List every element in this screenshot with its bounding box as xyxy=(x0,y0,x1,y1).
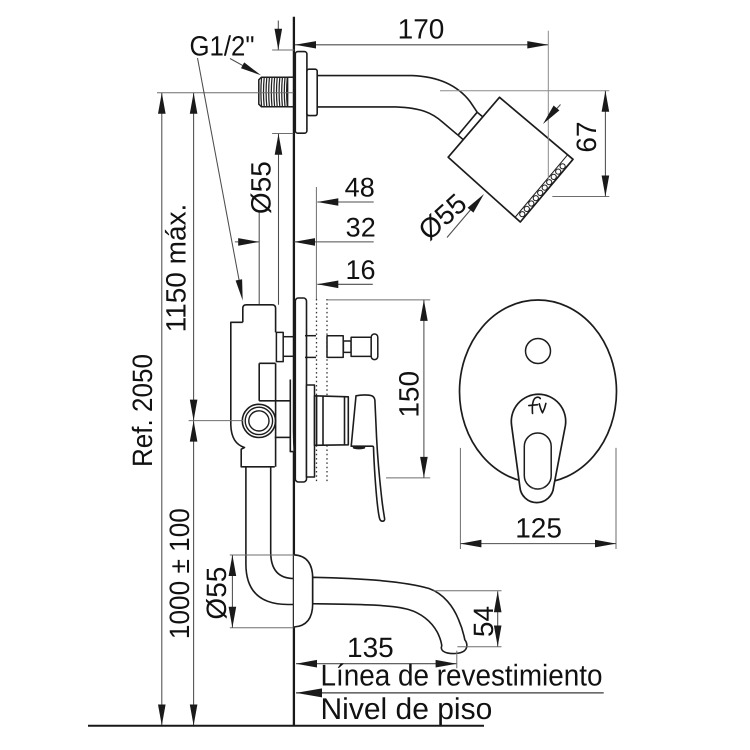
svg-text:125: 125 xyxy=(515,513,562,544)
svg-text:67: 67 xyxy=(571,121,602,152)
svg-text:1000 ± 100: 1000 ± 100 xyxy=(164,508,195,639)
svg-text:Ref. 2050: Ref. 2050 xyxy=(127,354,158,467)
svg-text:Ø55: Ø55 xyxy=(245,161,276,214)
svg-text:Nivel de piso: Nivel de piso xyxy=(321,693,493,726)
svg-text:32: 32 xyxy=(346,213,376,243)
svg-text:150: 150 xyxy=(394,371,425,418)
svg-text:170: 170 xyxy=(398,14,445,45)
svg-text:1150 máx.: 1150 máx. xyxy=(161,204,192,333)
svg-text:16: 16 xyxy=(345,255,375,285)
svg-text:G1/2": G1/2" xyxy=(190,31,255,62)
svg-text:Ø55: Ø55 xyxy=(201,567,232,620)
svg-text:Línea de revestimiento: Línea de revestimiento xyxy=(321,659,603,692)
svg-text:48: 48 xyxy=(345,173,375,203)
svg-text:54: 54 xyxy=(468,606,499,637)
